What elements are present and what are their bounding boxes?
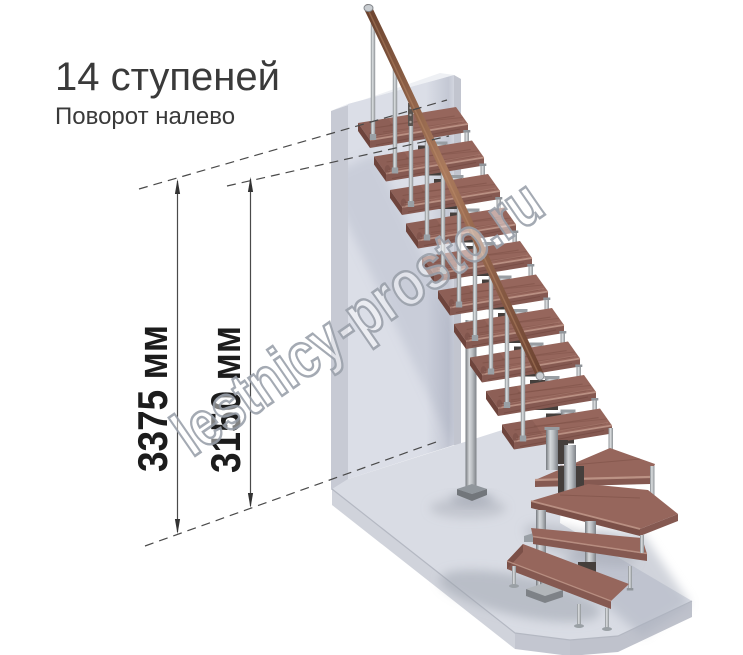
svg-text:14 ступеней: 14 ступеней xyxy=(55,55,280,99)
svg-text:Поворот налево: Поворот налево xyxy=(55,103,235,130)
svg-text:3375 мм: 3375 мм xyxy=(130,325,177,472)
